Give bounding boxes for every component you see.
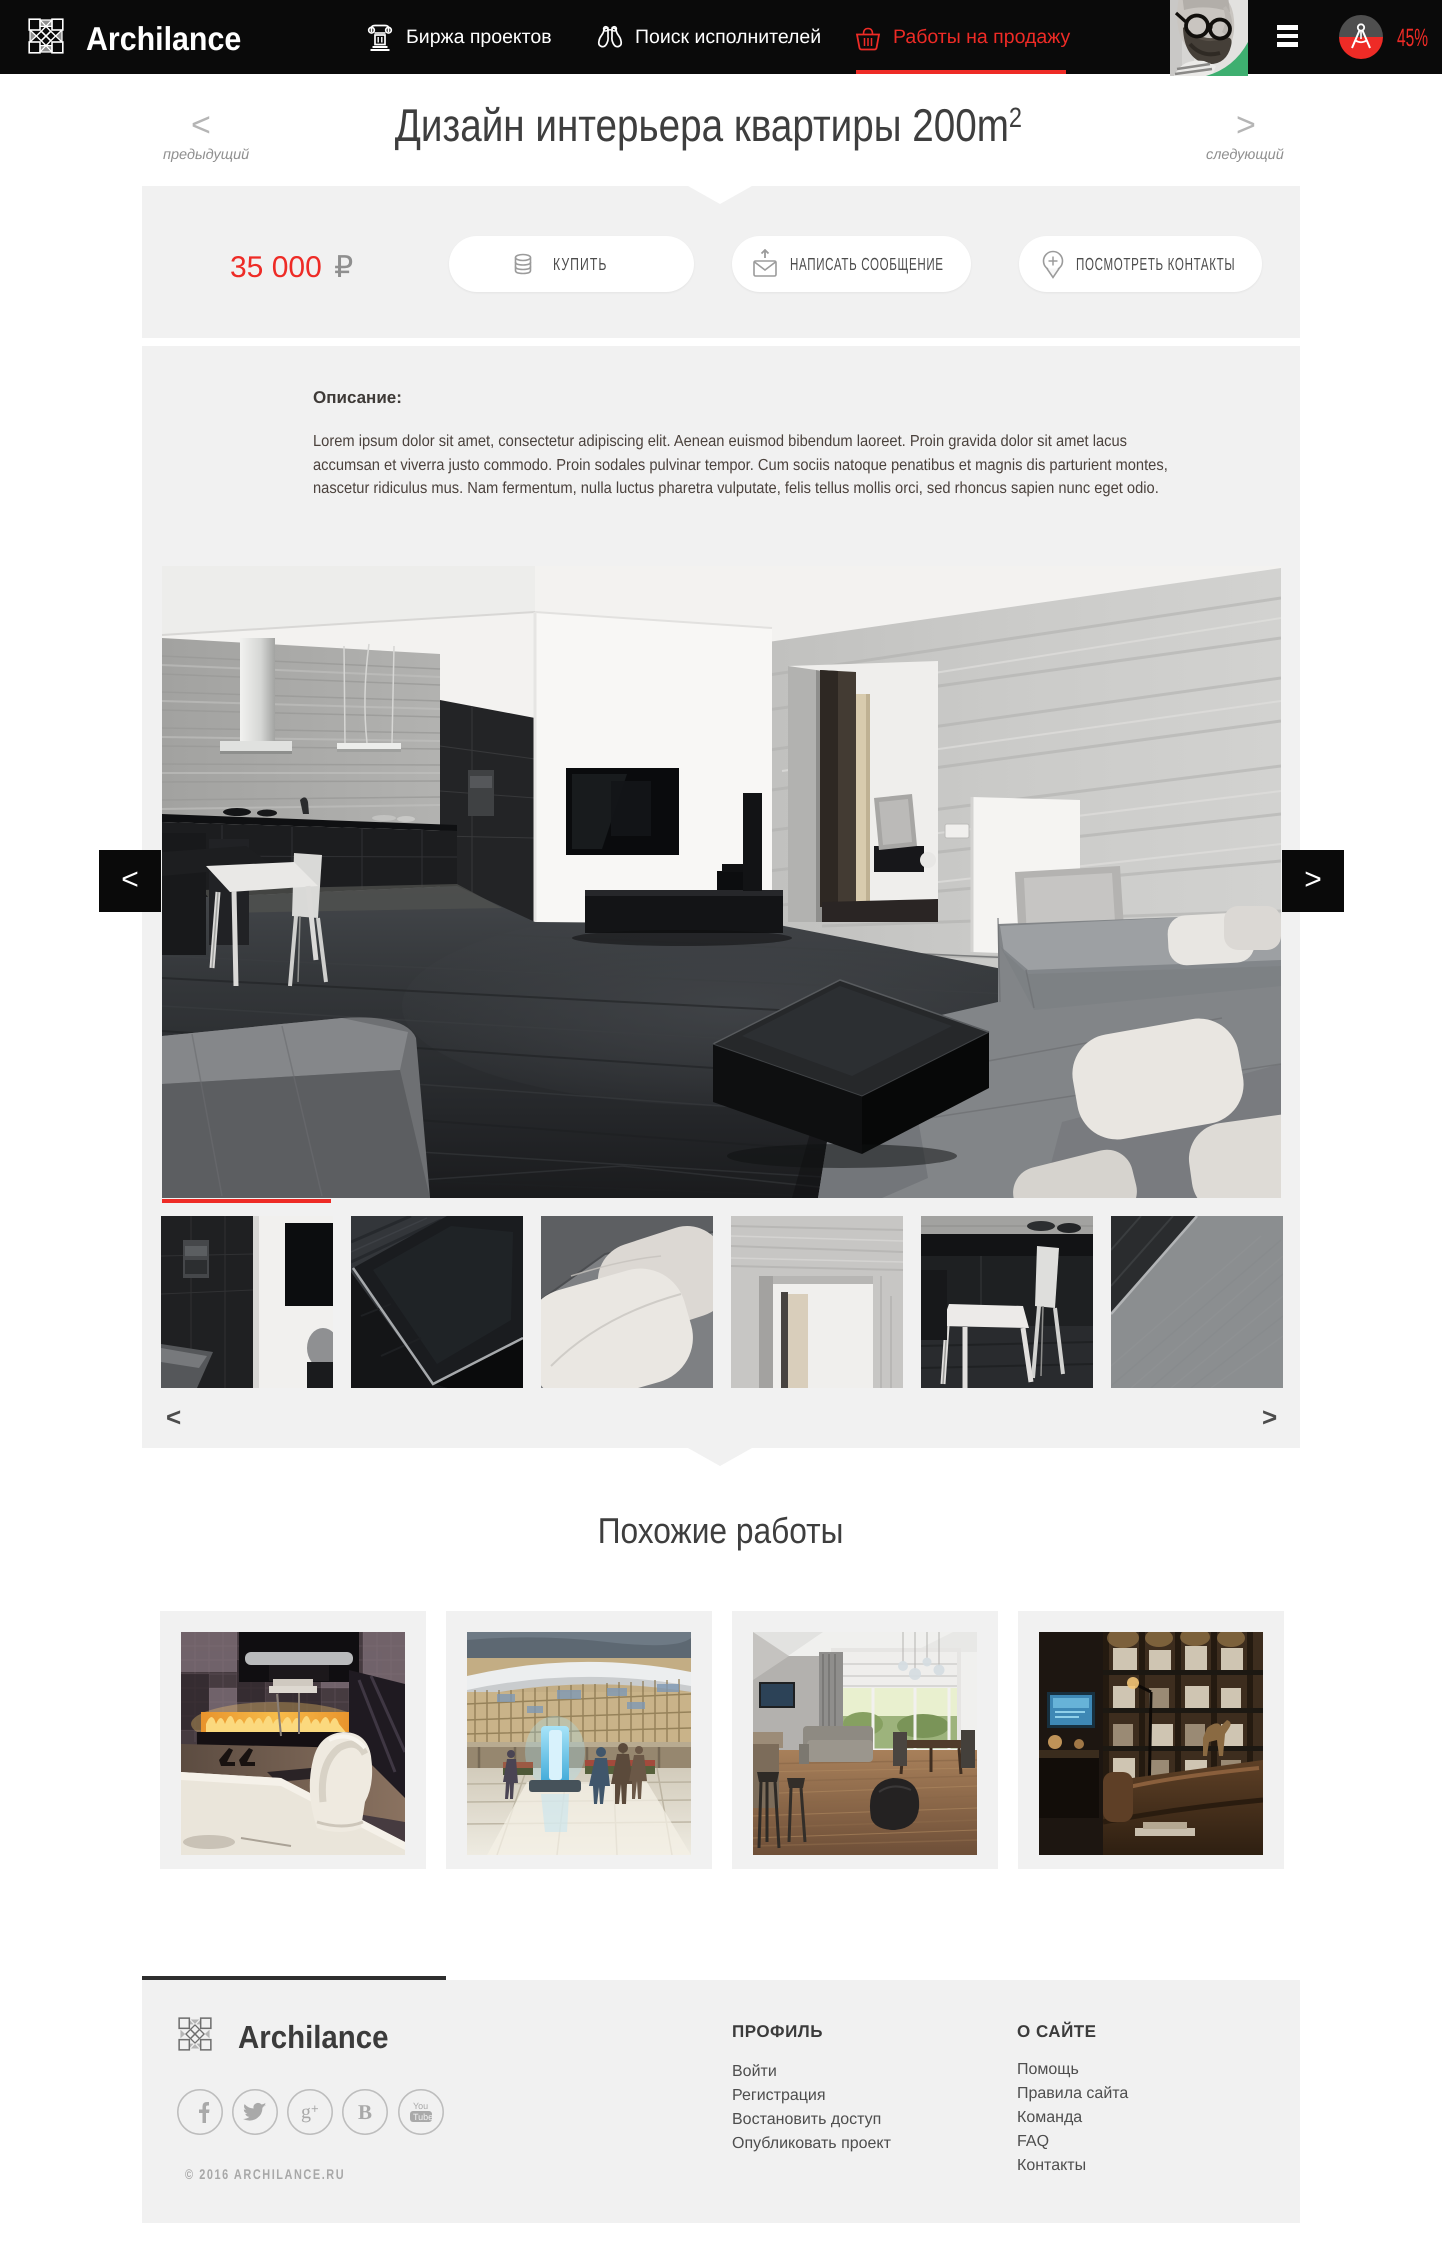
- svg-text:В: В: [358, 2100, 372, 2124]
- svg-text:Tube: Tube: [413, 2112, 433, 2122]
- svg-text:+: +: [311, 2101, 319, 2116]
- svg-text:g: g: [301, 2101, 311, 2123]
- svg-text:You: You: [413, 2101, 428, 2111]
